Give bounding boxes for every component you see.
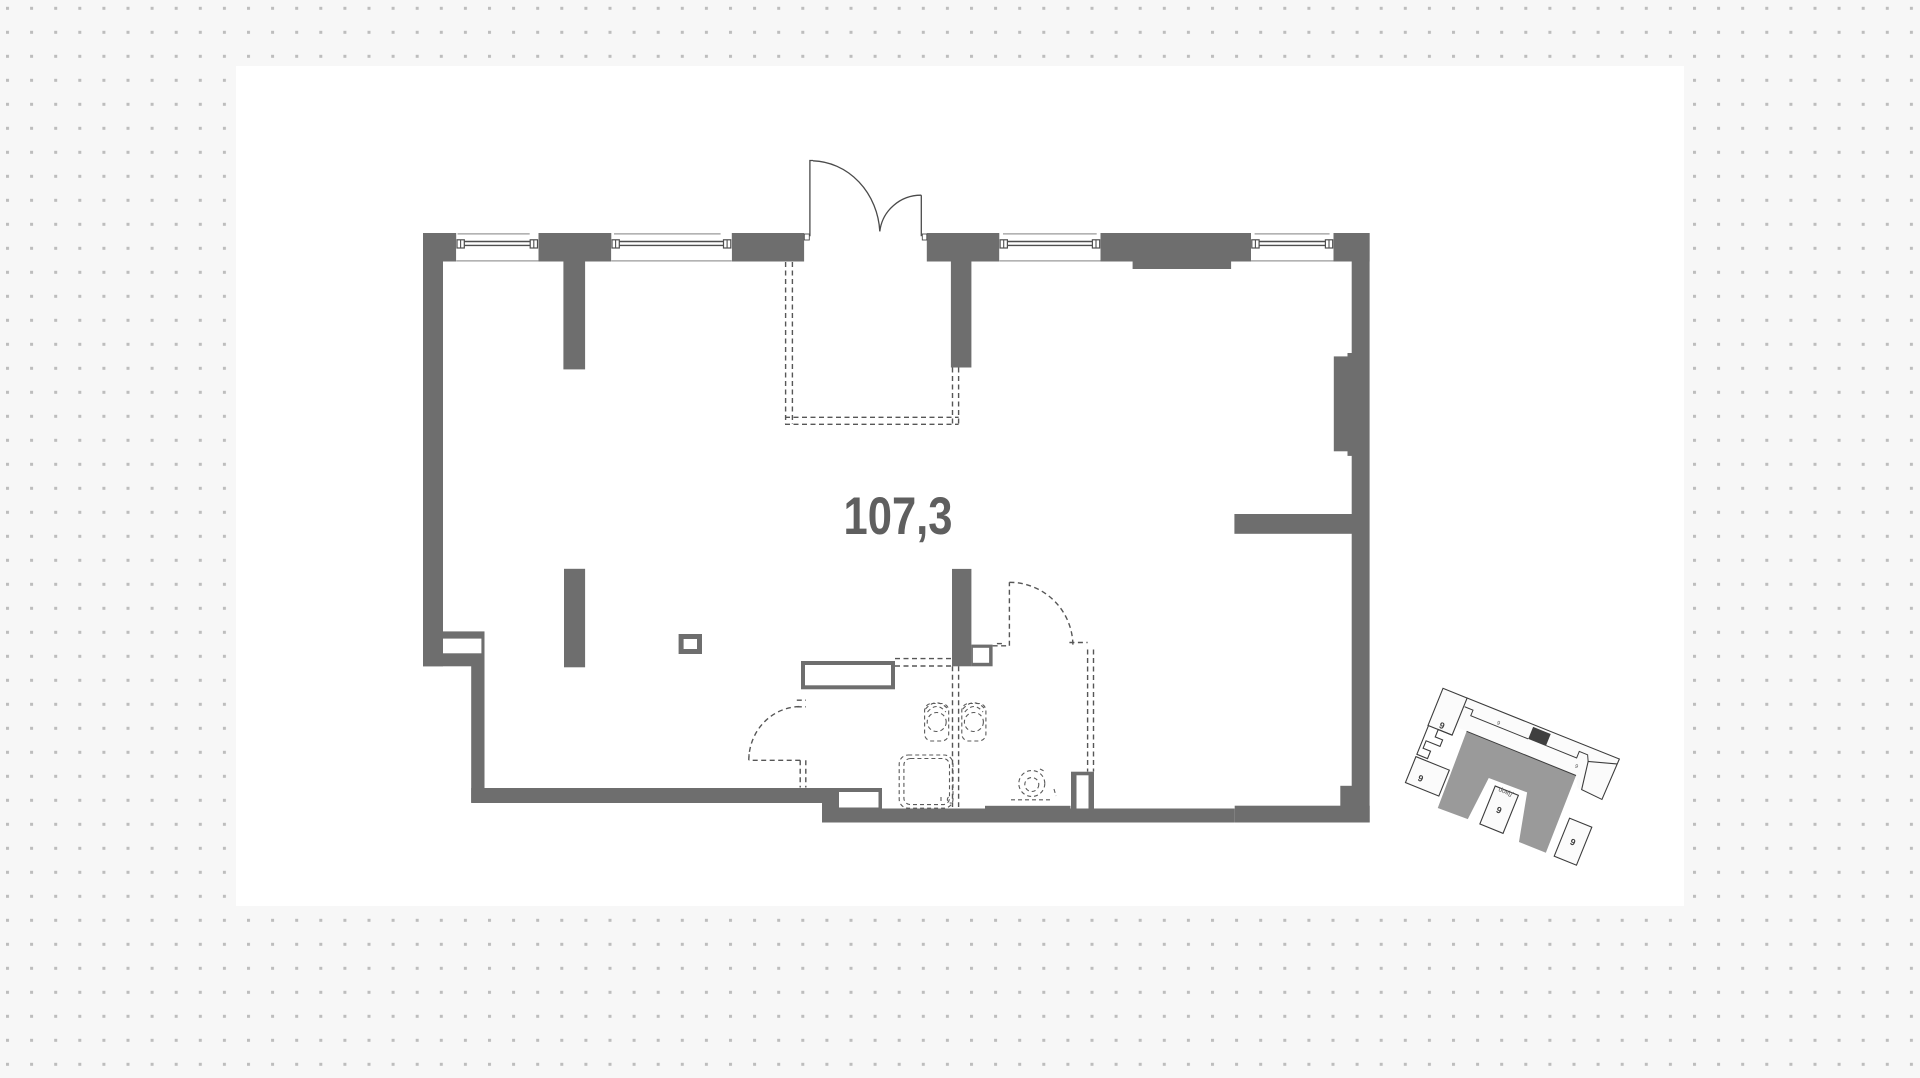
- svg-text:107,3: 107,3: [844, 487, 953, 546]
